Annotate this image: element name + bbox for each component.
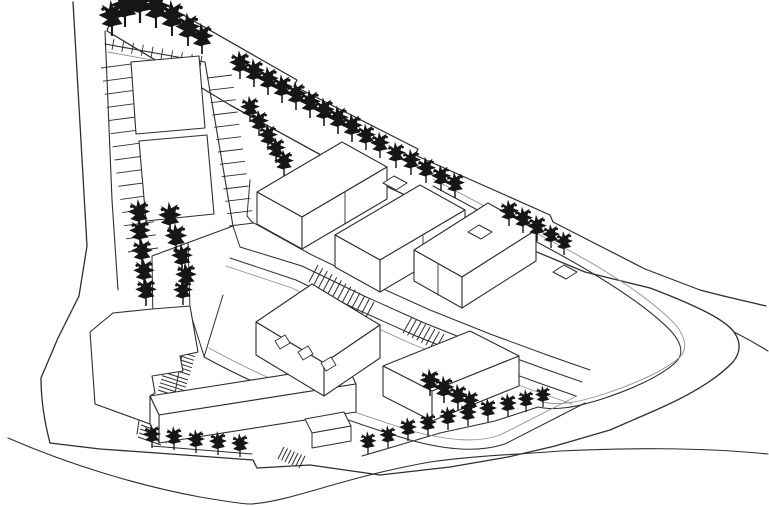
crosswalk-lower — [278, 447, 305, 468]
tree-icon — [479, 398, 497, 422]
tree-icon — [379, 425, 396, 448]
site-plan-figure: Black-and-white axonometric architectura… — [0, 0, 769, 506]
cluster1-right-steps — [207, 75, 254, 226]
tree-icon — [401, 149, 421, 175]
compound-outline-bottom — [152, 226, 233, 256]
south-plinth-left-wall — [204, 295, 223, 357]
tree-icon — [190, 23, 213, 54]
compound-outline-left — [105, 31, 118, 290]
tree-icon — [499, 393, 517, 417]
junction-connector-1 — [233, 226, 240, 247]
tree-icon — [159, 0, 186, 36]
site-plan-svg: Black-and-white axonometric architectura… — [0, 0, 769, 506]
tree-icon — [359, 431, 376, 454]
tree-icon — [356, 124, 376, 150]
tree-icon — [370, 132, 390, 158]
tree-icon — [135, 277, 157, 306]
ramp-edge-1 — [505, 403, 585, 444]
tree-icon — [341, 113, 363, 142]
tree-icon — [386, 142, 406, 168]
compound-building-north — [131, 56, 205, 134]
